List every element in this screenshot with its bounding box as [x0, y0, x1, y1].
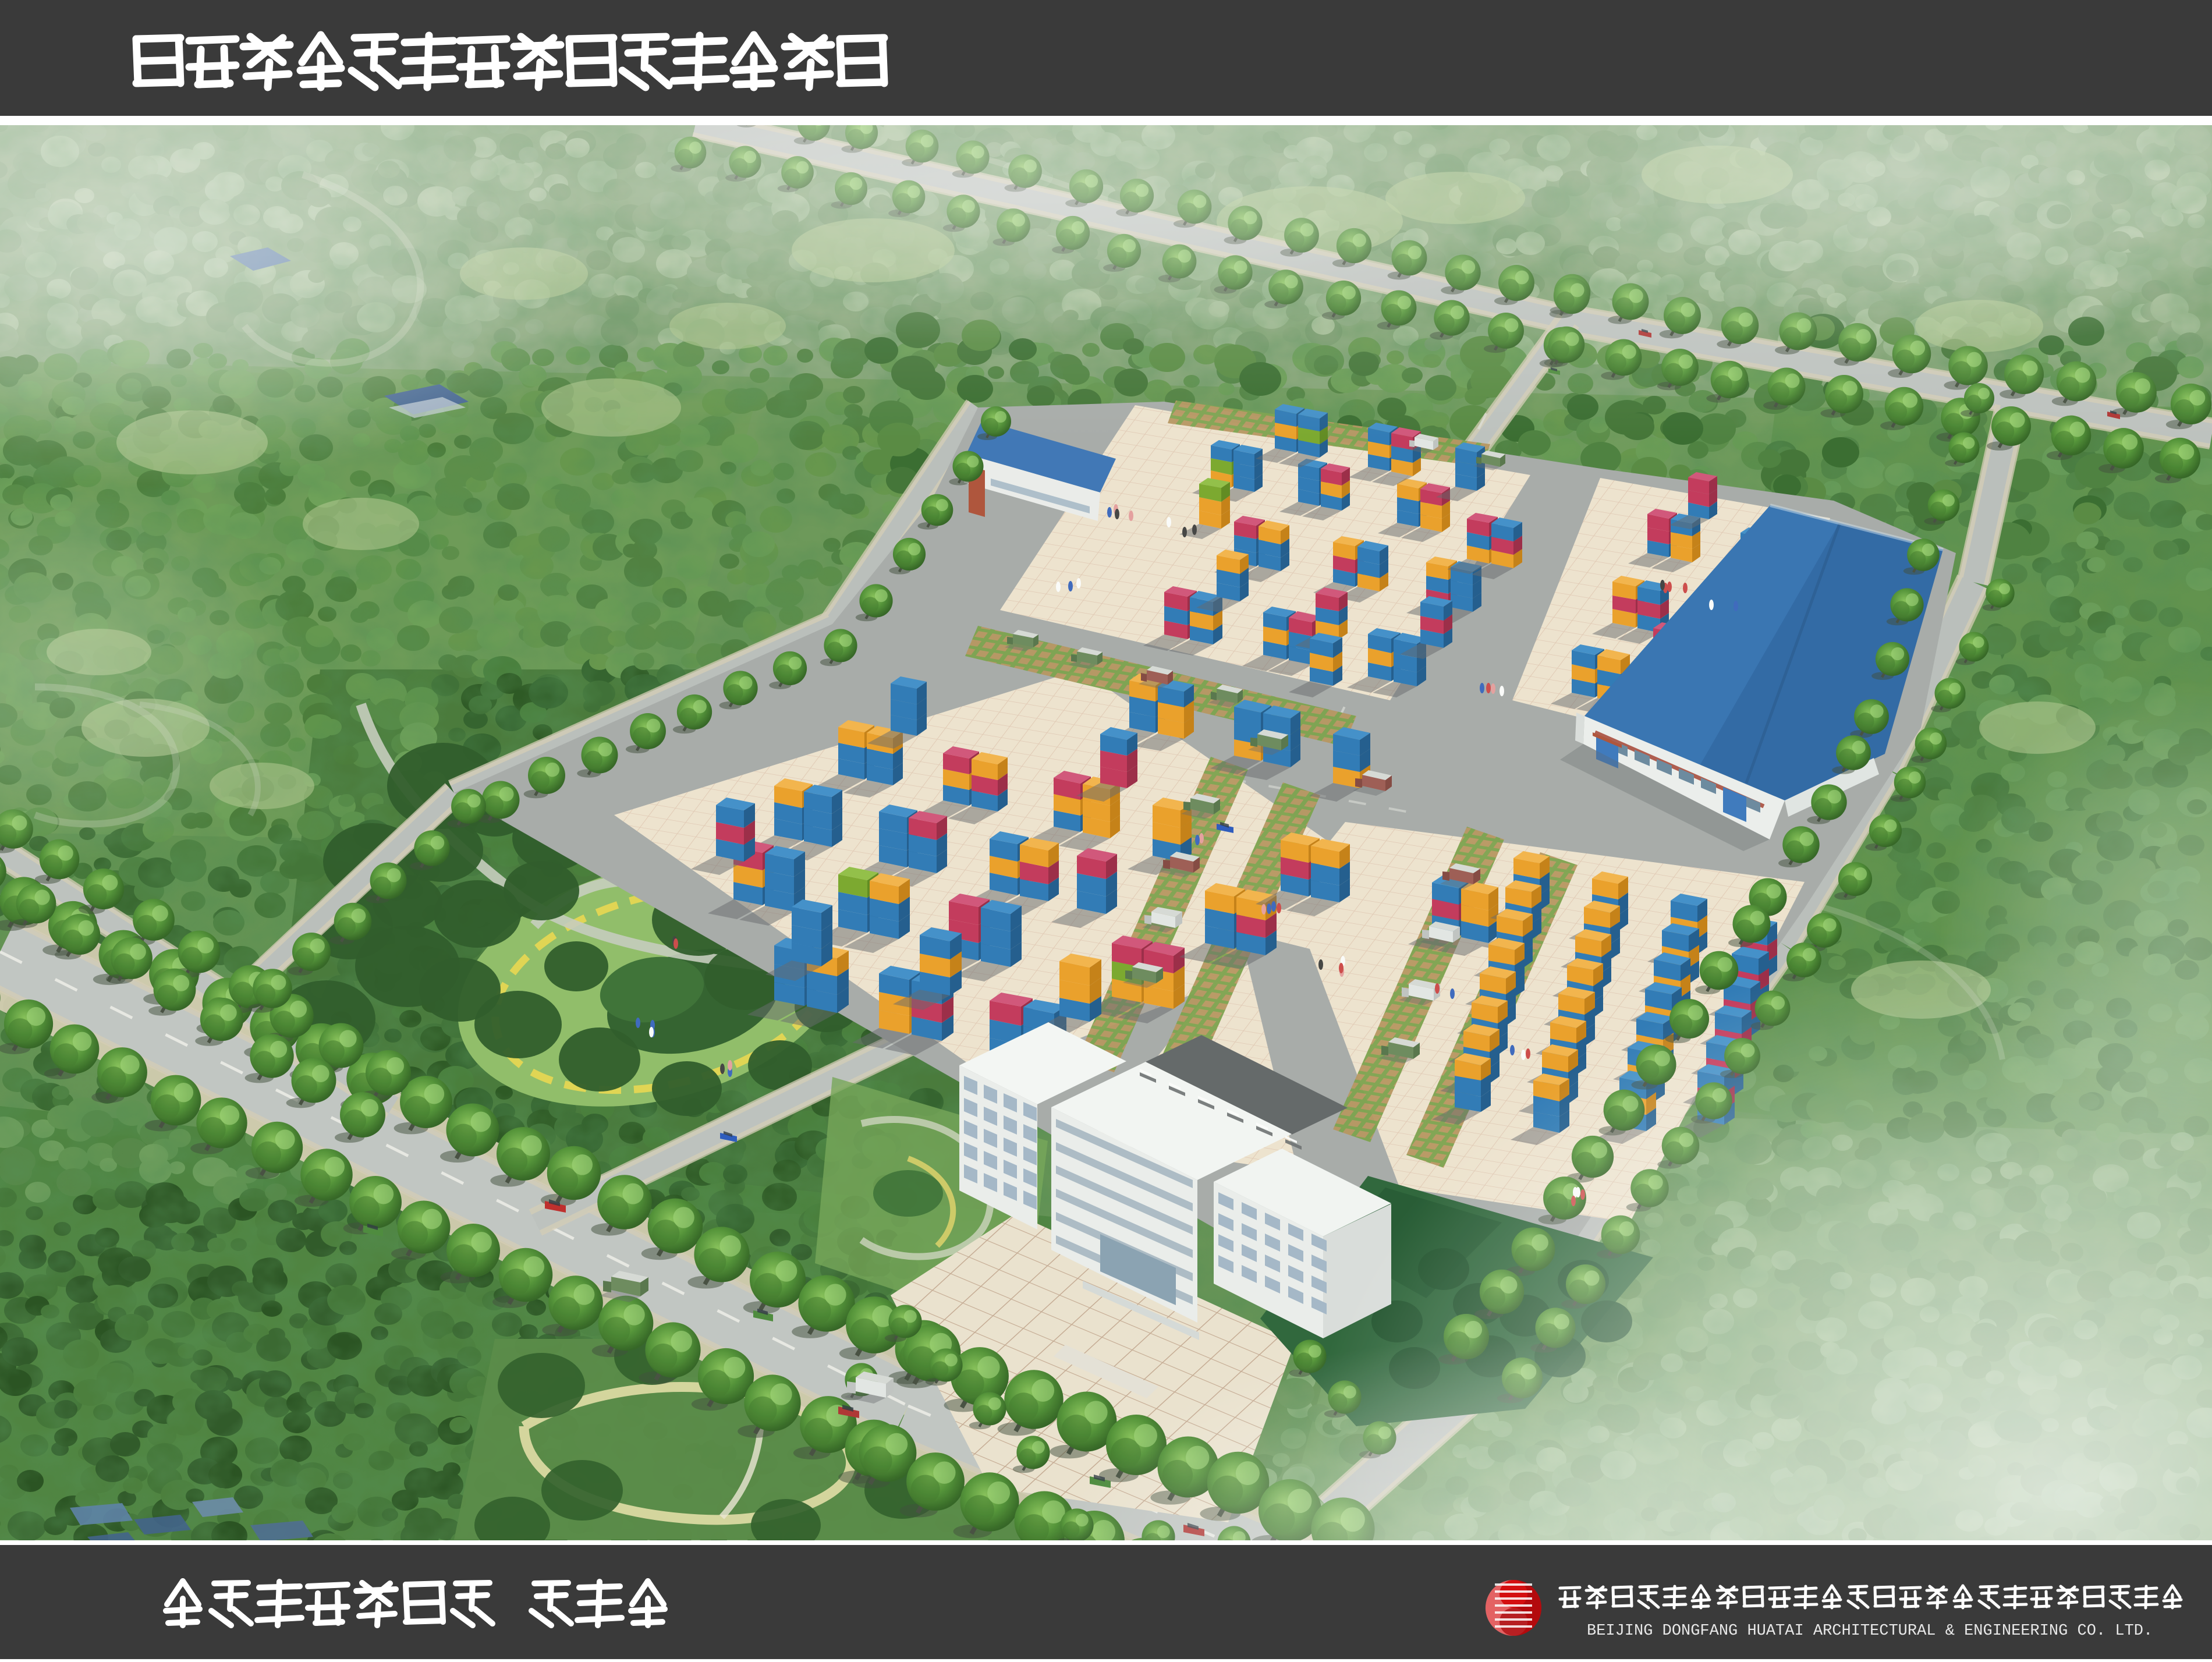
svg-text:BEIJING DONGFANG HUATAI ARCHIT: BEIJING DONGFANG HUATAI ARCHITECTURAL & …	[1587, 1622, 2153, 1640]
